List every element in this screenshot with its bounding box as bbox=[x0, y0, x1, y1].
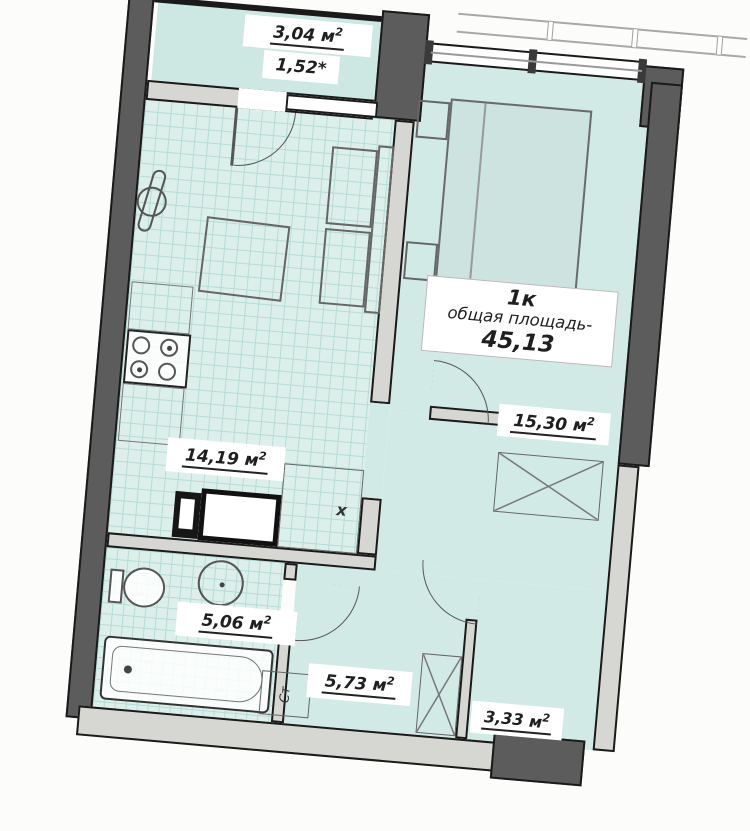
stove-icon bbox=[123, 329, 191, 388]
floor-plan: х Ст 3,04 м2 1,52* 1к общая площадь- 45,… bbox=[60, 0, 688, 826]
bathtub-inner bbox=[109, 645, 264, 704]
sink-basin bbox=[178, 498, 195, 529]
washer-icon bbox=[197, 488, 281, 547]
page: { "colors": { "wall-dark": "#5c5c5c", "w… bbox=[0, 0, 750, 780]
bed-icon bbox=[435, 98, 593, 298]
sink-drain-dot bbox=[219, 582, 224, 587]
wardrobe-icon bbox=[493, 452, 604, 521]
column-bottom-right bbox=[490, 733, 586, 787]
sofa-seat-icon bbox=[325, 146, 378, 228]
toilet-tank-icon bbox=[108, 569, 125, 604]
kitchen-sink-unit-icon bbox=[172, 491, 202, 539]
kitchen-counter bbox=[118, 383, 185, 446]
facade-post-2 bbox=[631, 28, 639, 48]
nightstand-icon bbox=[415, 100, 450, 141]
total-area-value: 45,13 bbox=[480, 326, 555, 359]
riser-label: Ст bbox=[277, 685, 293, 703]
fridge-spot-box: х bbox=[277, 463, 364, 554]
sofa-seat-icon bbox=[319, 228, 371, 308]
fridge-marker: х bbox=[331, 499, 353, 521]
wardrobe-icon bbox=[415, 653, 462, 736]
facade-post-1 bbox=[546, 21, 554, 41]
wall-bathroom-hall-top bbox=[283, 563, 297, 581]
riser-box: Ст bbox=[259, 670, 313, 718]
table-icon bbox=[198, 216, 291, 302]
burner-icon bbox=[157, 362, 177, 382]
facade-post-3 bbox=[716, 35, 724, 55]
kitchen-counter bbox=[128, 281, 194, 334]
burner-icon bbox=[131, 336, 151, 356]
